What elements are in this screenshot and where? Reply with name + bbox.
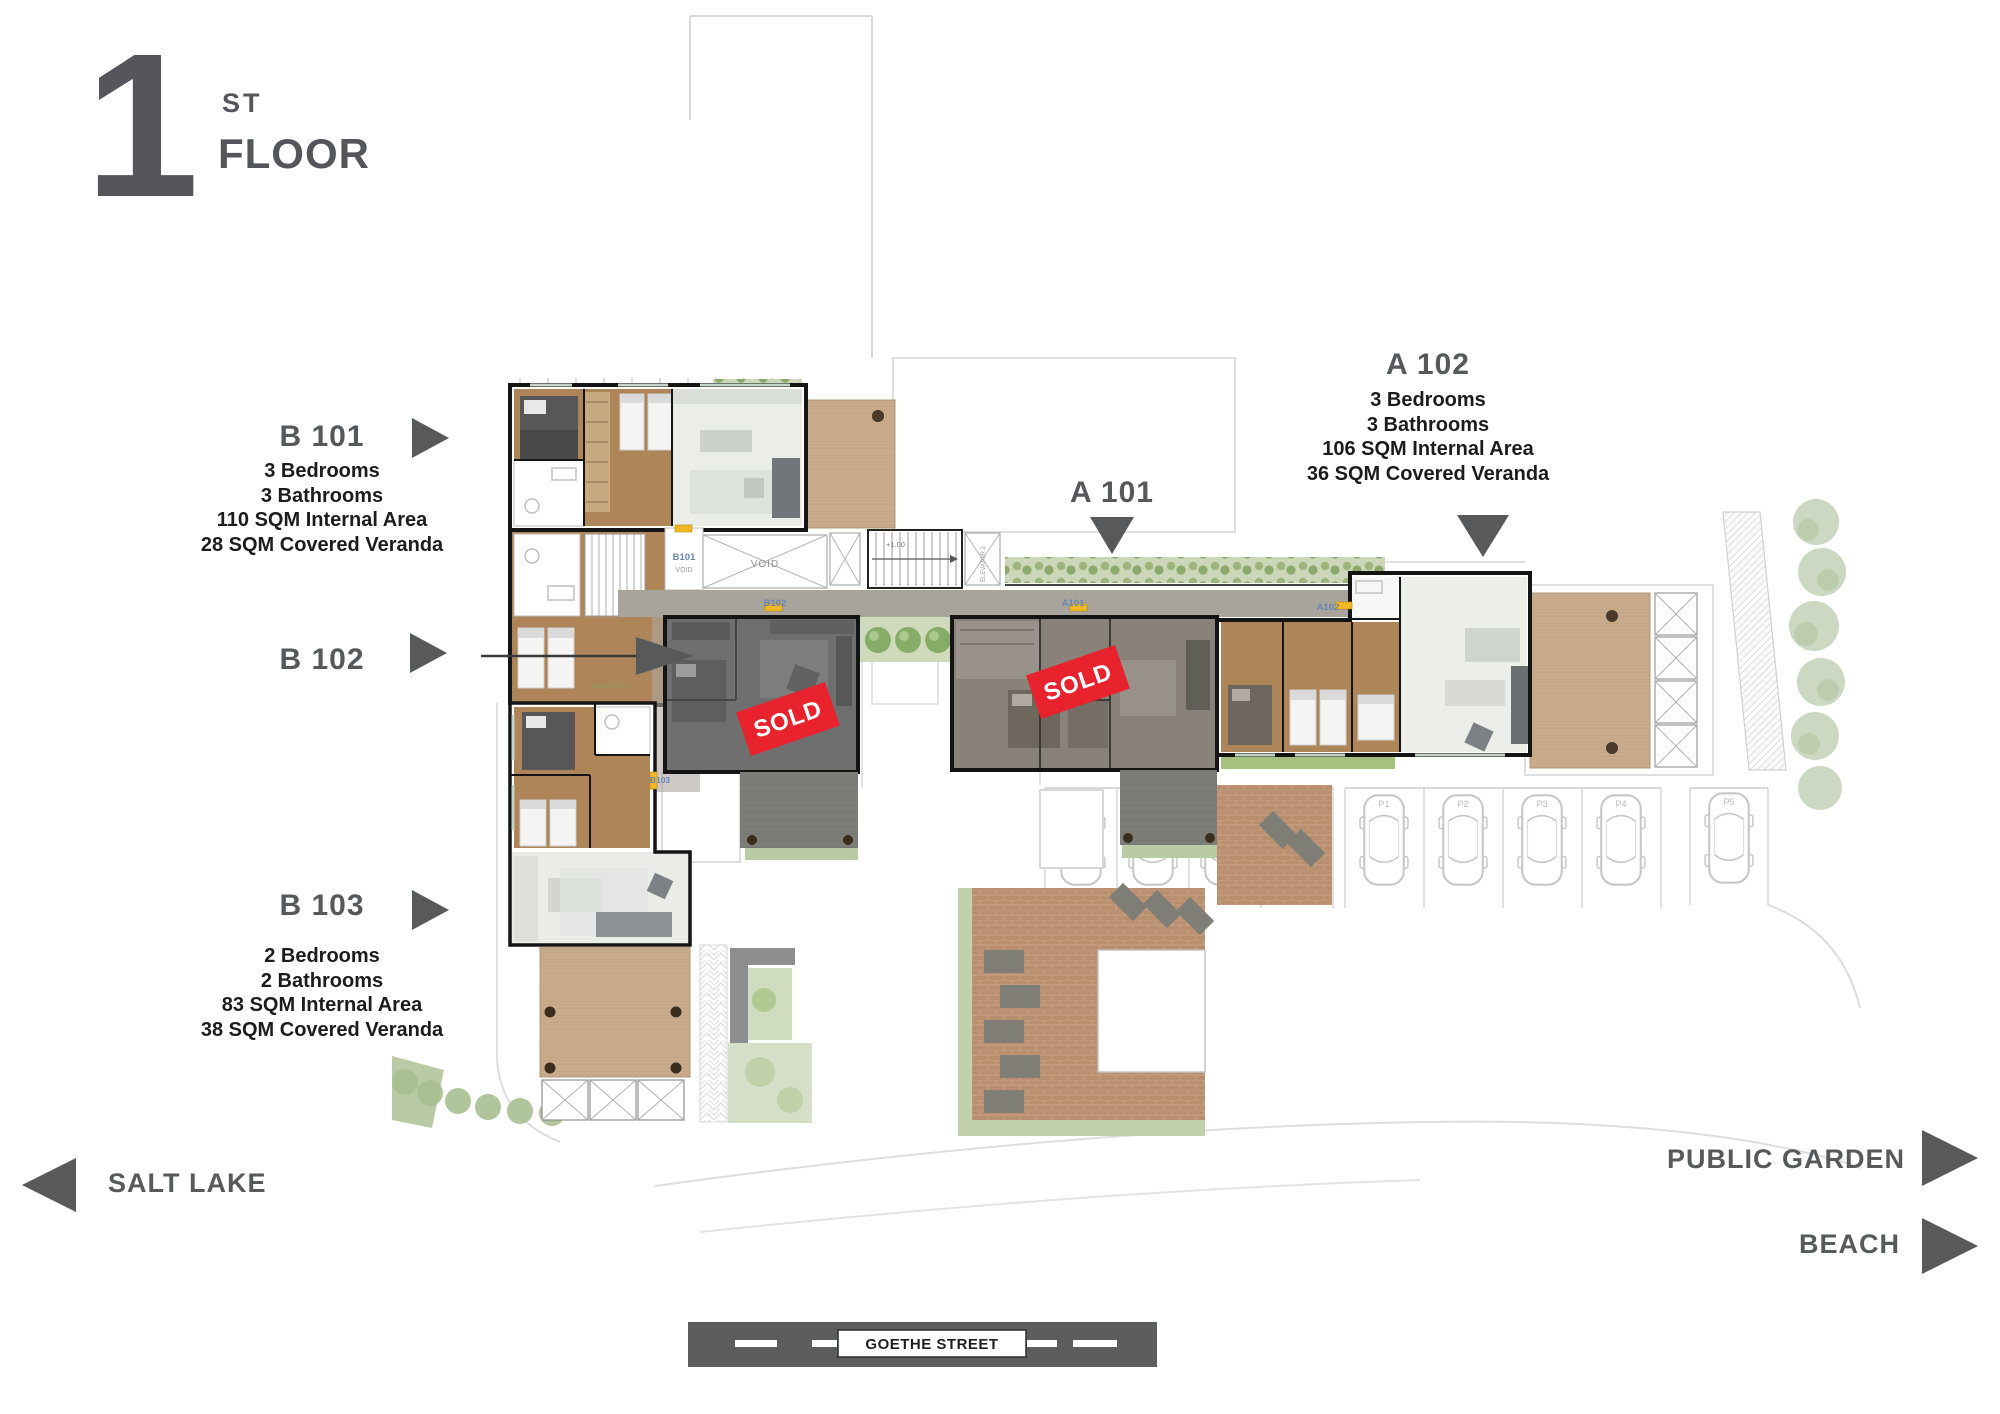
b103-detail-bathrooms: 2 Bathrooms — [102, 969, 542, 994]
parking-label-p1: P1 — [1378, 799, 1389, 809]
beach-label: BEACH — [1799, 1229, 1900, 1260]
b101-detail-bathrooms: 3 Bathrooms — [102, 484, 542, 509]
unit-a101-plan — [952, 617, 1217, 868]
b103-detail-veranda: 38 SQM Covered Veranda — [102, 1018, 542, 1043]
unit-b102-title: B 102 — [279, 643, 364, 677]
salt-lake-arrow-icon — [22, 1158, 76, 1212]
unit-b101-plan — [510, 378, 895, 530]
elevator-1-label: ELEVATOR 1 — [592, 683, 631, 690]
a101-arrow-icon — [1090, 517, 1134, 554]
b101-detail-internal-area: 110 SQM Internal Area — [102, 508, 542, 533]
b101-detail-veranda: 28 SQM Covered Veranda — [102, 533, 542, 558]
parking-label-p3: P3 — [1536, 799, 1547, 809]
salt-lake-label: SALT LAKE — [108, 1168, 267, 1199]
a102-detail-bedrooms: 3 Bedrooms — [1208, 388, 1648, 413]
unit-a102-details: 3 Bedrooms 3 Bathrooms 106 SQM Internal … — [1208, 388, 1648, 486]
parking-label-p5: P5 — [1723, 797, 1734, 807]
center-planter — [860, 617, 952, 662]
unit-b101-title: B 101 — [279, 420, 364, 454]
a102-detail-bathrooms: 3 Bathrooms — [1208, 413, 1648, 438]
parking-label-p4: P4 — [1615, 799, 1626, 809]
a102-detail-internal-area: 106 SQM Internal Area — [1208, 437, 1648, 462]
floor-number: 1 — [85, 23, 199, 228]
void-label-large: VOID — [751, 559, 779, 570]
unit-a102-title: A 102 — [1386, 348, 1470, 382]
corridor-b103-label: B103 — [650, 775, 671, 785]
corridor-b101-label: B101 — [673, 552, 696, 563]
a102-detail-veranda: 36 SQM Covered Veranda — [1208, 462, 1648, 487]
corridor-a101-label: A101 — [1062, 598, 1085, 609]
beach-arrow-icon — [1922, 1218, 1978, 1274]
street-name-label: GOETHE STREET — [865, 1336, 998, 1353]
unit-b103-details: 2 Bedrooms 2 Bathrooms 83 SQM Internal A… — [102, 944, 542, 1042]
a102-arrow-icon — [1457, 515, 1509, 557]
b101-arrow-icon — [412, 418, 449, 458]
public-garden-label: PUBLIC GARDEN — [1667, 1144, 1905, 1175]
stairs-level-label: +1.00 — [886, 540, 905, 549]
floor-ordinal: ST — [222, 88, 263, 119]
site-plan-drawing: VOID VOID ELEVATOR 1 ELEVATOR 2 +1.00 B1… — [0, 0, 2000, 1414]
unit-a101-title: A 101 — [1070, 476, 1154, 510]
b103-arrow-icon — [412, 890, 449, 930]
core-services — [665, 528, 1000, 590]
floor-word: FLOOR — [218, 130, 370, 178]
floor-plan-page: VOID VOID ELEVATOR 1 ELEVATOR 2 +1.00 B1… — [0, 0, 2000, 1414]
b103-detail-bedrooms: 2 Bedrooms — [102, 944, 542, 969]
elevator-2-label: ELEVATOR 2 — [981, 545, 987, 582]
corridor-b102-label: B102 — [764, 598, 787, 609]
b103-detail-internal-area: 83 SQM Internal Area — [102, 993, 542, 1018]
landscape-right — [1723, 499, 1846, 810]
b102-arrow-icon — [410, 633, 447, 673]
b101-detail-bedrooms: 3 Bedrooms — [102, 459, 542, 484]
unit-b103-title: B 103 — [279, 889, 364, 923]
unit-b101-details: 3 Bedrooms 3 Bathrooms 110 SQM Internal … — [102, 459, 542, 557]
public-garden-arrow-icon — [1922, 1130, 1978, 1186]
void-label-small: VOID — [675, 567, 692, 574]
goethe-street-bar: GOETHE STREET — [688, 1322, 1157, 1367]
corridor-a102-label: A102 — [1317, 602, 1340, 613]
parking-label-p2: P2 — [1457, 799, 1468, 809]
